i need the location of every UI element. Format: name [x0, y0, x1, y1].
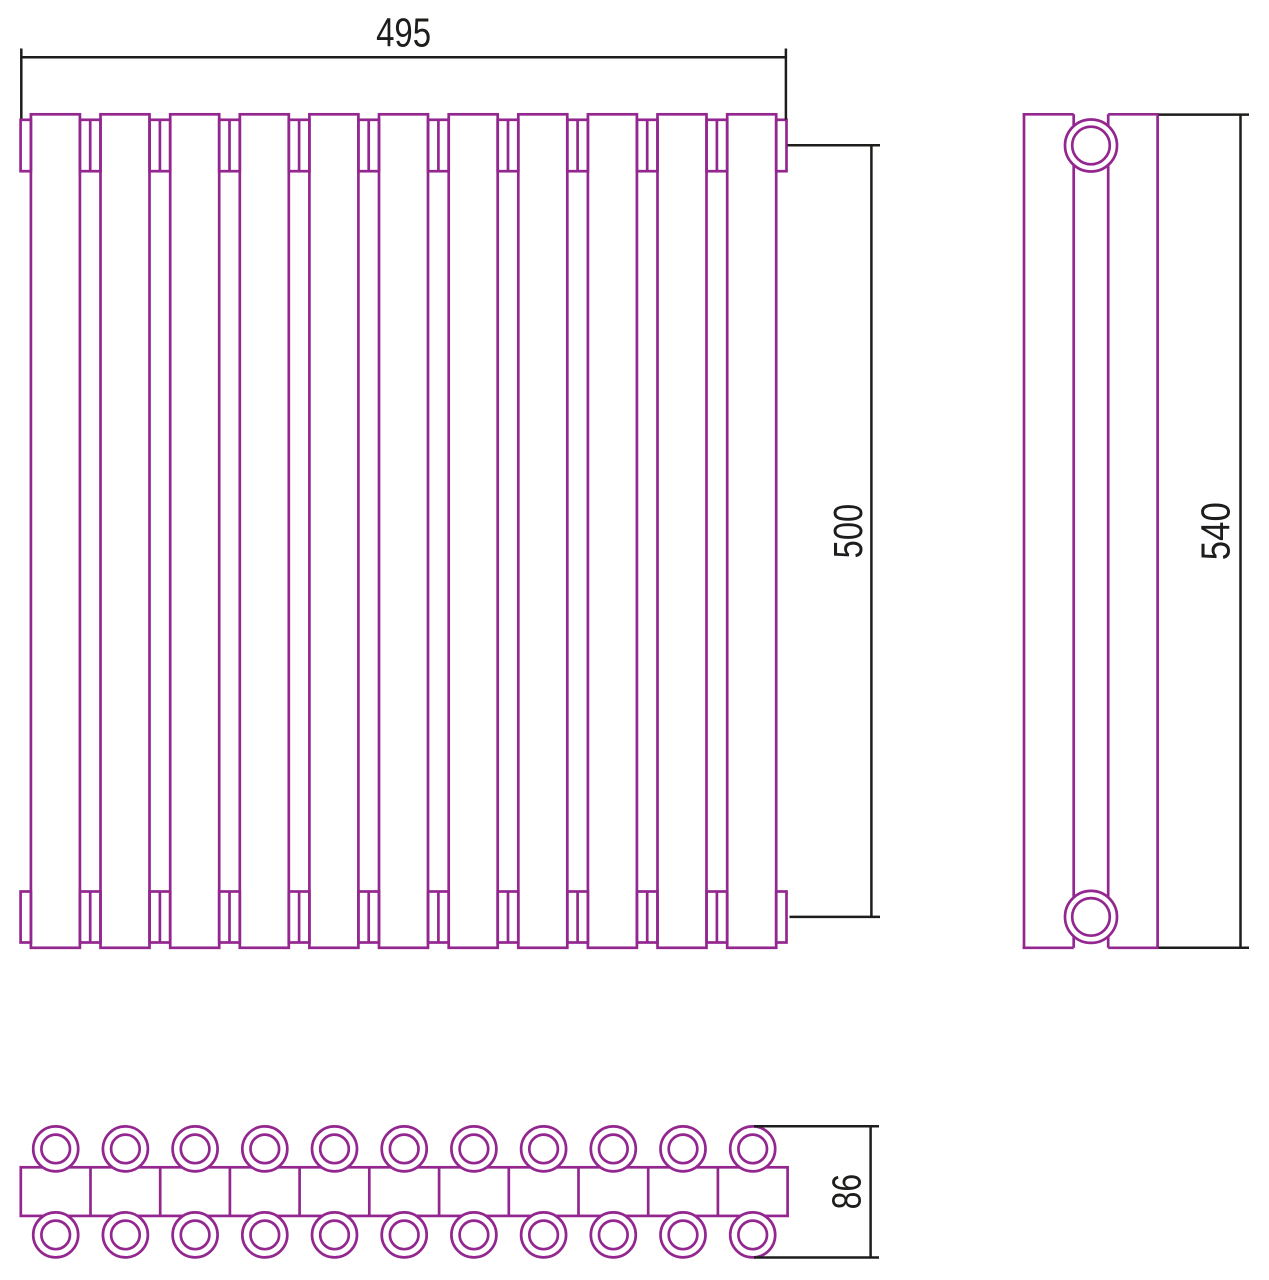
svg-text:500: 500 — [825, 504, 871, 559]
svg-text:86: 86 — [824, 1174, 870, 1210]
svg-text:540: 540 — [1193, 502, 1239, 560]
svg-text:495: 495 — [376, 9, 431, 55]
